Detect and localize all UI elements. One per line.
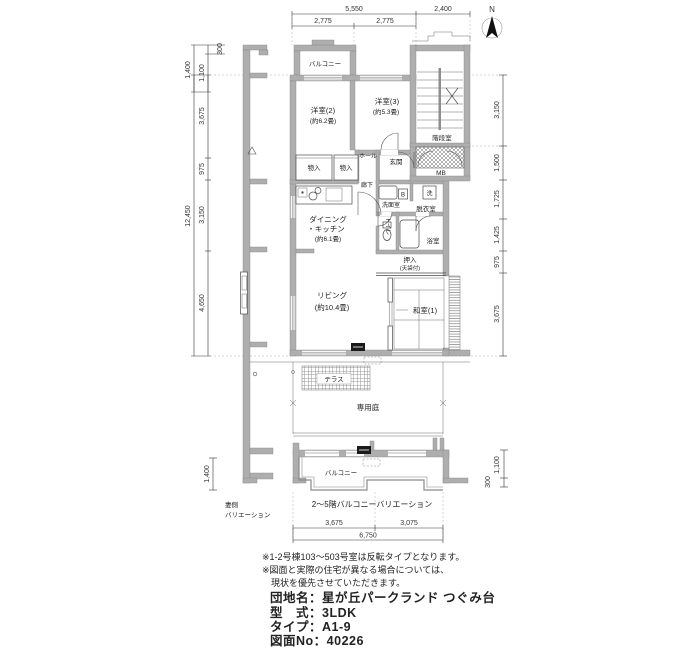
entrance-label: 玄関	[390, 157, 403, 166]
washitsu-label: 和室(1)	[413, 305, 438, 315]
dim-left-total: 12,450	[185, 205, 192, 227]
boiler-tag: B	[401, 193, 405, 199]
info-layout-type: 型 式：3LDK	[270, 605, 357, 620]
dim-left-300: 300	[217, 43, 224, 55]
notes-block: ※1-2号棟103〜503号室は反転タイプとなります。 ※図面と実際の住宅が異な…	[262, 551, 464, 588]
dim-br-300: 300	[485, 476, 492, 488]
compass-needle-icon	[486, 16, 498, 38]
living-label: リビング	[317, 290, 347, 300]
info-drawing-number: 図面No：40226	[270, 634, 364, 648]
terrace-label: テラス	[324, 376, 343, 384]
info-plan-type: タイプ：A1-9	[270, 619, 351, 634]
balcony-bottom-label: バルコニー	[325, 469, 357, 477]
bedroom3-label: 洋室(3)	[375, 96, 400, 106]
balcony-variation-caption: 2〜5階バルコニーバリエーション	[312, 499, 433, 509]
dim-bottom-3675: 3,675	[325, 520, 343, 527]
balcony-railing-inner	[302, 457, 443, 487]
dk-size: (約6.1畳)	[315, 234, 341, 243]
dimension-left: 1,400 1,100 300 12,450 3,675 975 3,150 4…	[185, 43, 288, 356]
dim-right-1500: 1,500	[494, 154, 501, 172]
dashed-tag	[364, 357, 381, 364]
oshiire-note: (天袋付)	[400, 264, 420, 272]
laundry-tag: 洗	[426, 190, 432, 198]
gable-side-wall-section	[241, 45, 274, 483]
stairwell-label: 階段室	[432, 133, 452, 142]
property-info-block: 団地名：星が丘パークランド つぐみ台 型 式：3LDK タイプ：A1-9 図面N…	[270, 590, 495, 648]
balcony-variation-section: バルコニー 2〜5階バルコニーバリエーション	[293, 438, 468, 509]
corridor-label: 廊下	[361, 181, 373, 189]
dim-top-left-half: 2,775	[314, 18, 332, 25]
balcony-top-label: バルコニー	[309, 60, 341, 68]
dim-left-3675: 3,675	[199, 107, 206, 125]
dim-bottom-total: 6,750	[359, 533, 377, 540]
note-line-3: 現状を優先させていただきます。	[271, 577, 405, 588]
dimension-bottom-right: 1,100 300	[485, 450, 508, 488]
bath-label: 浴室	[427, 236, 441, 245]
dim-br-1100: 1,100	[494, 456, 501, 474]
living-size: (約10.4畳)	[315, 302, 350, 312]
gable-caption-1: 妻側	[225, 500, 239, 509]
dim-right-1725: 1,725	[494, 190, 501, 208]
oshiire-label: 押入	[404, 255, 418, 264]
info-danchi-name: 団地名：星が丘パークランド つぐみ台	[270, 590, 495, 605]
north-label: N	[489, 5, 495, 14]
bedroom3-size: (約5.3畳)	[373, 107, 399, 116]
bedroom2-size: (約6.2畳)	[310, 116, 336, 125]
dim-top-right-half: 2,775	[376, 18, 394, 25]
bedroom2-label: 洋室(2)	[311, 105, 336, 115]
toilet-label: トイレ	[384, 217, 390, 235]
dressing-room-label: 脱衣室	[416, 204, 436, 213]
dim-right-3150: 3,150	[494, 101, 501, 119]
closet1-label: 物入	[308, 163, 322, 172]
note-line-1: ※1-2号棟103〜503号室は反転タイプとなります。	[262, 551, 464, 562]
floor-plan-page: 5,550 2,400 2,775 2,775 N 1,400 1,100 30…	[0, 0, 700, 650]
dimension-bottom-left: 1,400 妻側 バリエーション	[204, 458, 270, 519]
dim-left-4650: 4,650	[199, 294, 206, 312]
dim-left-1400: 1,400	[185, 61, 192, 79]
entrance-canopy-outline	[412, 32, 470, 41]
balcony-railing-outer	[299, 457, 443, 490]
stair-divider	[439, 68, 442, 130]
dim-bl-1400: 1,400	[204, 465, 211, 483]
garden-label: 専用庭	[357, 402, 380, 412]
dk-label-2: ・キッチン	[307, 225, 345, 234]
fusuma-panel	[388, 326, 393, 350]
washitsu-shutter-band	[449, 276, 460, 350]
dim-left-975: 975	[199, 163, 206, 175]
dim-right-975: 975	[494, 256, 501, 268]
dim-right-3675: 3,675	[494, 305, 501, 323]
dim-bottom-3075: 3,075	[400, 520, 418, 527]
dim-left-1100: 1,100	[199, 64, 206, 82]
meter-box-grille	[416, 147, 464, 168]
dashed-tag	[363, 459, 380, 466]
compass-north: N	[482, 5, 502, 38]
dim-right-1425: 1,425	[494, 226, 501, 244]
dim-left-3150: 3,150	[199, 206, 206, 224]
garden-area: テラス 専用庭	[250, 362, 470, 436]
hall-label: ホール	[359, 153, 377, 160]
meter-box-label: MB	[436, 170, 446, 177]
gable-caption-2: バリエーション	[225, 511, 270, 519]
floor-plan-drawing: 5,550 2,400 2,775 2,775 N 1,400 1,100 30…	[0, 0, 700, 650]
kitchen-counter	[296, 186, 352, 204]
stairwell-block: 階段室 MB	[410, 32, 470, 181]
dim-top-stair: 2,400	[434, 6, 452, 13]
closet2-label: 物入	[340, 163, 354, 172]
dk-label-1: ダイニング	[309, 214, 347, 224]
fusuma-panel	[388, 278, 393, 302]
washroom-label: 洗面室	[382, 201, 400, 209]
note-line-2: ※図面と実際の住宅が異なる場合については、	[262, 564, 449, 575]
washbasin-icon	[379, 186, 397, 199]
dim-top-total: 5,550	[345, 6, 363, 13]
